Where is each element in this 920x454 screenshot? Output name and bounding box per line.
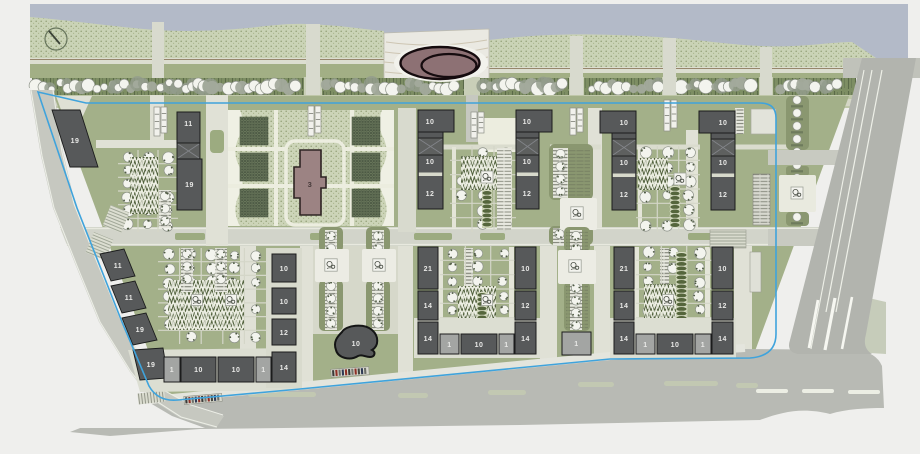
svg-text:10: 10 bbox=[426, 159, 435, 166]
svg-text:10: 10 bbox=[521, 266, 530, 273]
svg-text:12: 12 bbox=[719, 192, 728, 199]
svg-text:10: 10 bbox=[620, 120, 629, 127]
svg-text:1: 1 bbox=[447, 342, 451, 349]
svg-text:10: 10 bbox=[426, 119, 435, 126]
svg-text:21: 21 bbox=[424, 266, 433, 273]
svg-text:19: 19 bbox=[136, 327, 145, 334]
svg-text:10: 10 bbox=[475, 342, 484, 349]
svg-text:1: 1 bbox=[170, 367, 174, 374]
svg-text:10: 10 bbox=[280, 266, 289, 273]
svg-text:1: 1 bbox=[504, 342, 508, 349]
svg-text:10: 10 bbox=[620, 160, 629, 167]
svg-text:10: 10 bbox=[718, 266, 727, 273]
svg-text:1: 1 bbox=[261, 367, 265, 374]
svg-text:19: 19 bbox=[185, 182, 194, 189]
svg-text:12: 12 bbox=[718, 303, 727, 310]
svg-text:10: 10 bbox=[194, 367, 203, 374]
svg-text:11: 11 bbox=[114, 263, 122, 270]
svg-text:14: 14 bbox=[424, 336, 433, 343]
svg-text:1: 1 bbox=[574, 341, 578, 348]
svg-text:12: 12 bbox=[620, 192, 629, 199]
svg-text:10: 10 bbox=[671, 342, 680, 349]
svg-text:3: 3 bbox=[308, 180, 313, 189]
svg-text:14: 14 bbox=[521, 336, 530, 343]
svg-text:10: 10 bbox=[232, 367, 241, 374]
svg-text:12: 12 bbox=[521, 303, 530, 310]
svg-text:14: 14 bbox=[620, 336, 629, 343]
svg-text:12: 12 bbox=[523, 191, 532, 198]
svg-text:11: 11 bbox=[125, 295, 133, 302]
svg-text:12: 12 bbox=[426, 191, 435, 198]
svg-text:1: 1 bbox=[643, 342, 647, 349]
svg-text:10: 10 bbox=[352, 341, 361, 348]
svg-text:11: 11 bbox=[184, 121, 192, 128]
svg-text:10: 10 bbox=[523, 159, 532, 166]
svg-text:1: 1 bbox=[701, 342, 705, 349]
svg-text:10: 10 bbox=[280, 299, 289, 306]
svg-text:19: 19 bbox=[71, 138, 80, 145]
svg-text:10: 10 bbox=[719, 120, 728, 127]
svg-text:19: 19 bbox=[147, 362, 156, 369]
svg-text:12: 12 bbox=[280, 330, 289, 337]
svg-text:14: 14 bbox=[424, 303, 433, 310]
svg-text:14: 14 bbox=[280, 365, 289, 372]
svg-text:21: 21 bbox=[620, 266, 629, 273]
svg-text:10: 10 bbox=[719, 160, 728, 167]
svg-text:14: 14 bbox=[718, 336, 727, 343]
svg-text:10: 10 bbox=[523, 119, 532, 126]
svg-text:14: 14 bbox=[620, 303, 629, 310]
